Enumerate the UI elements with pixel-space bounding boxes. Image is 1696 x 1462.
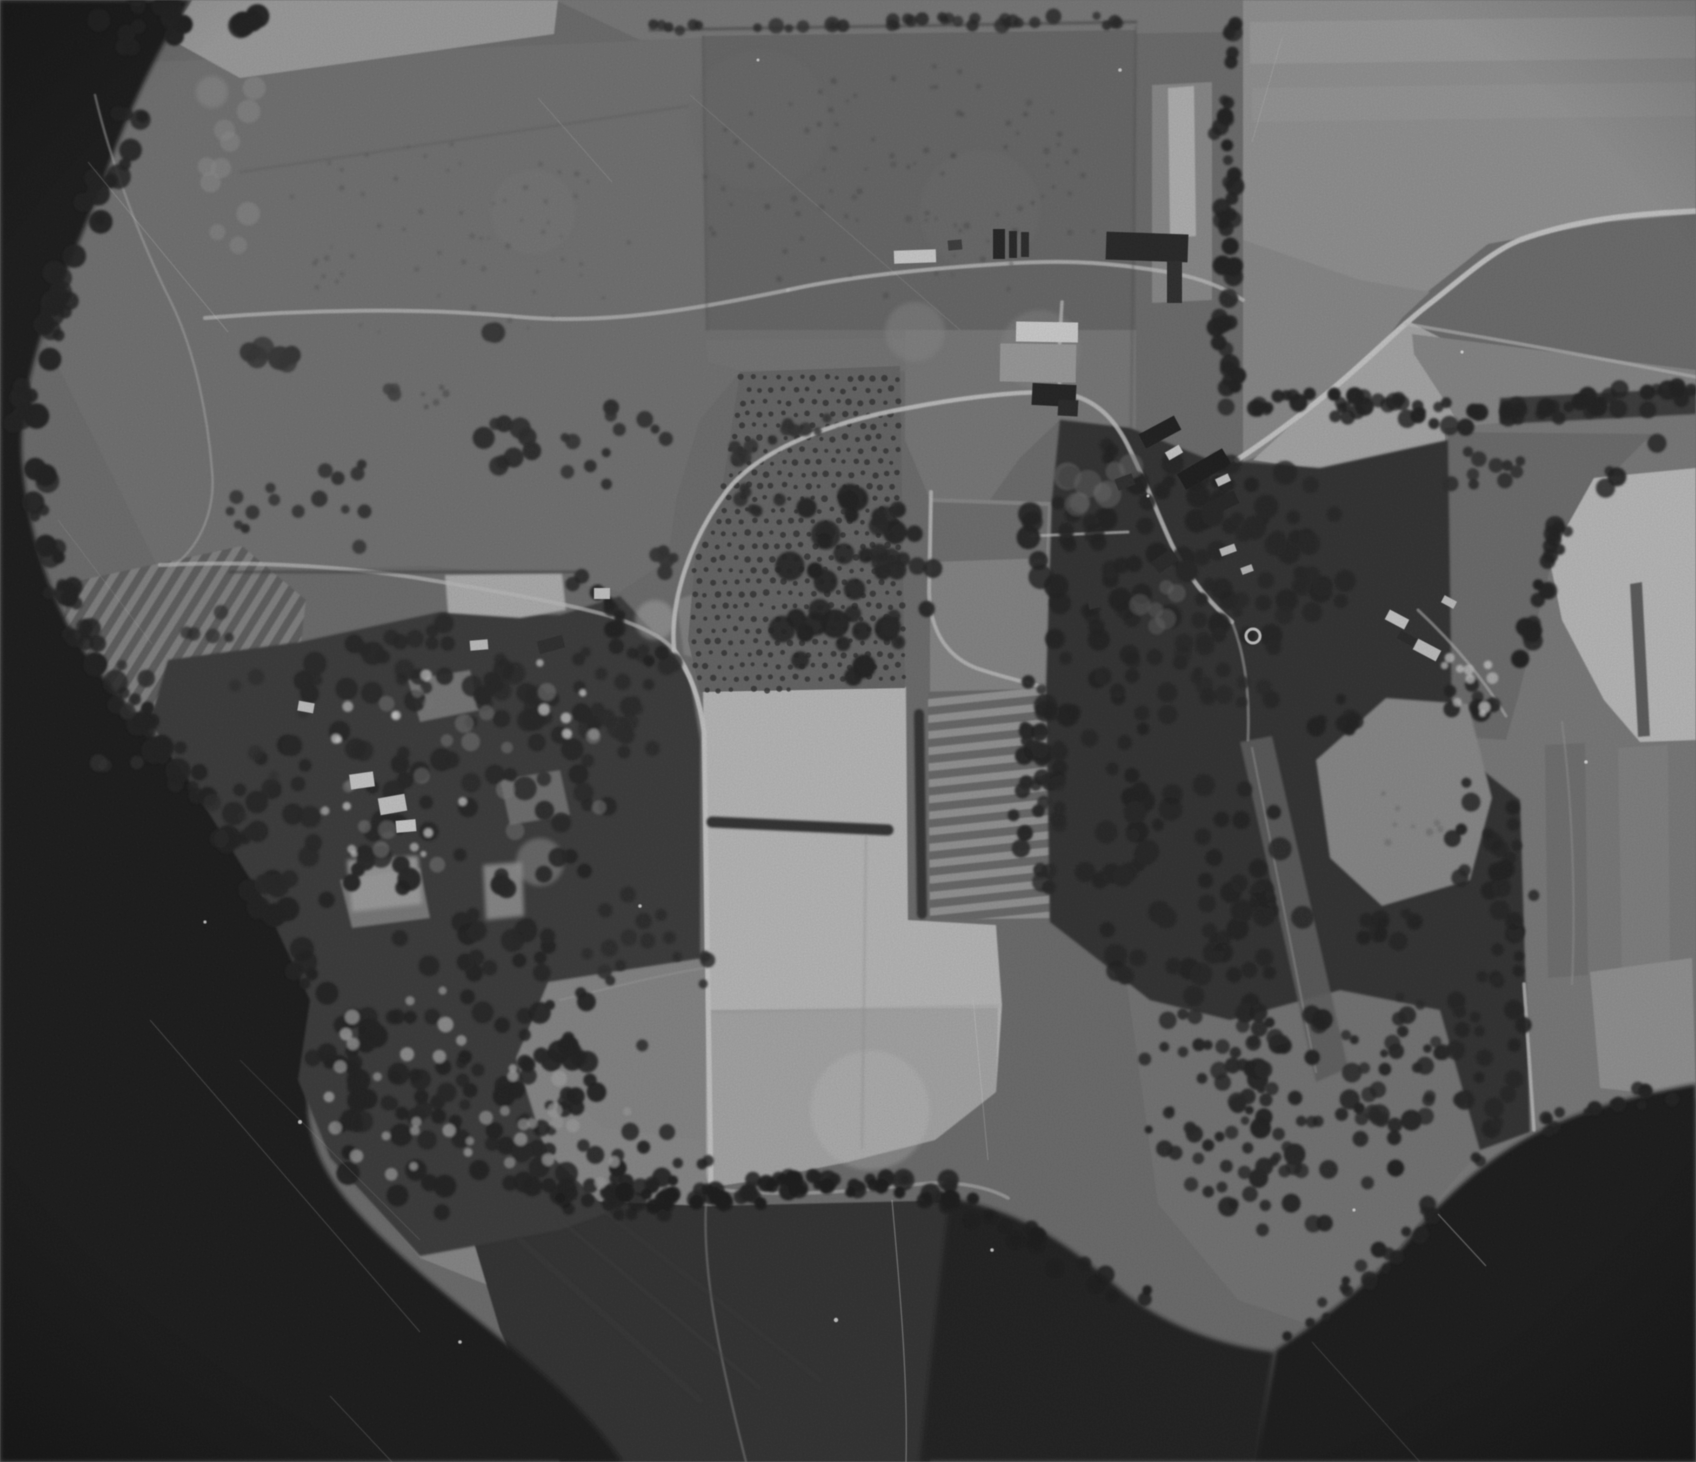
aerial-photograph xyxy=(0,0,1696,1462)
vignette xyxy=(0,0,1696,1462)
aerial-photo-stage xyxy=(0,0,1696,1462)
